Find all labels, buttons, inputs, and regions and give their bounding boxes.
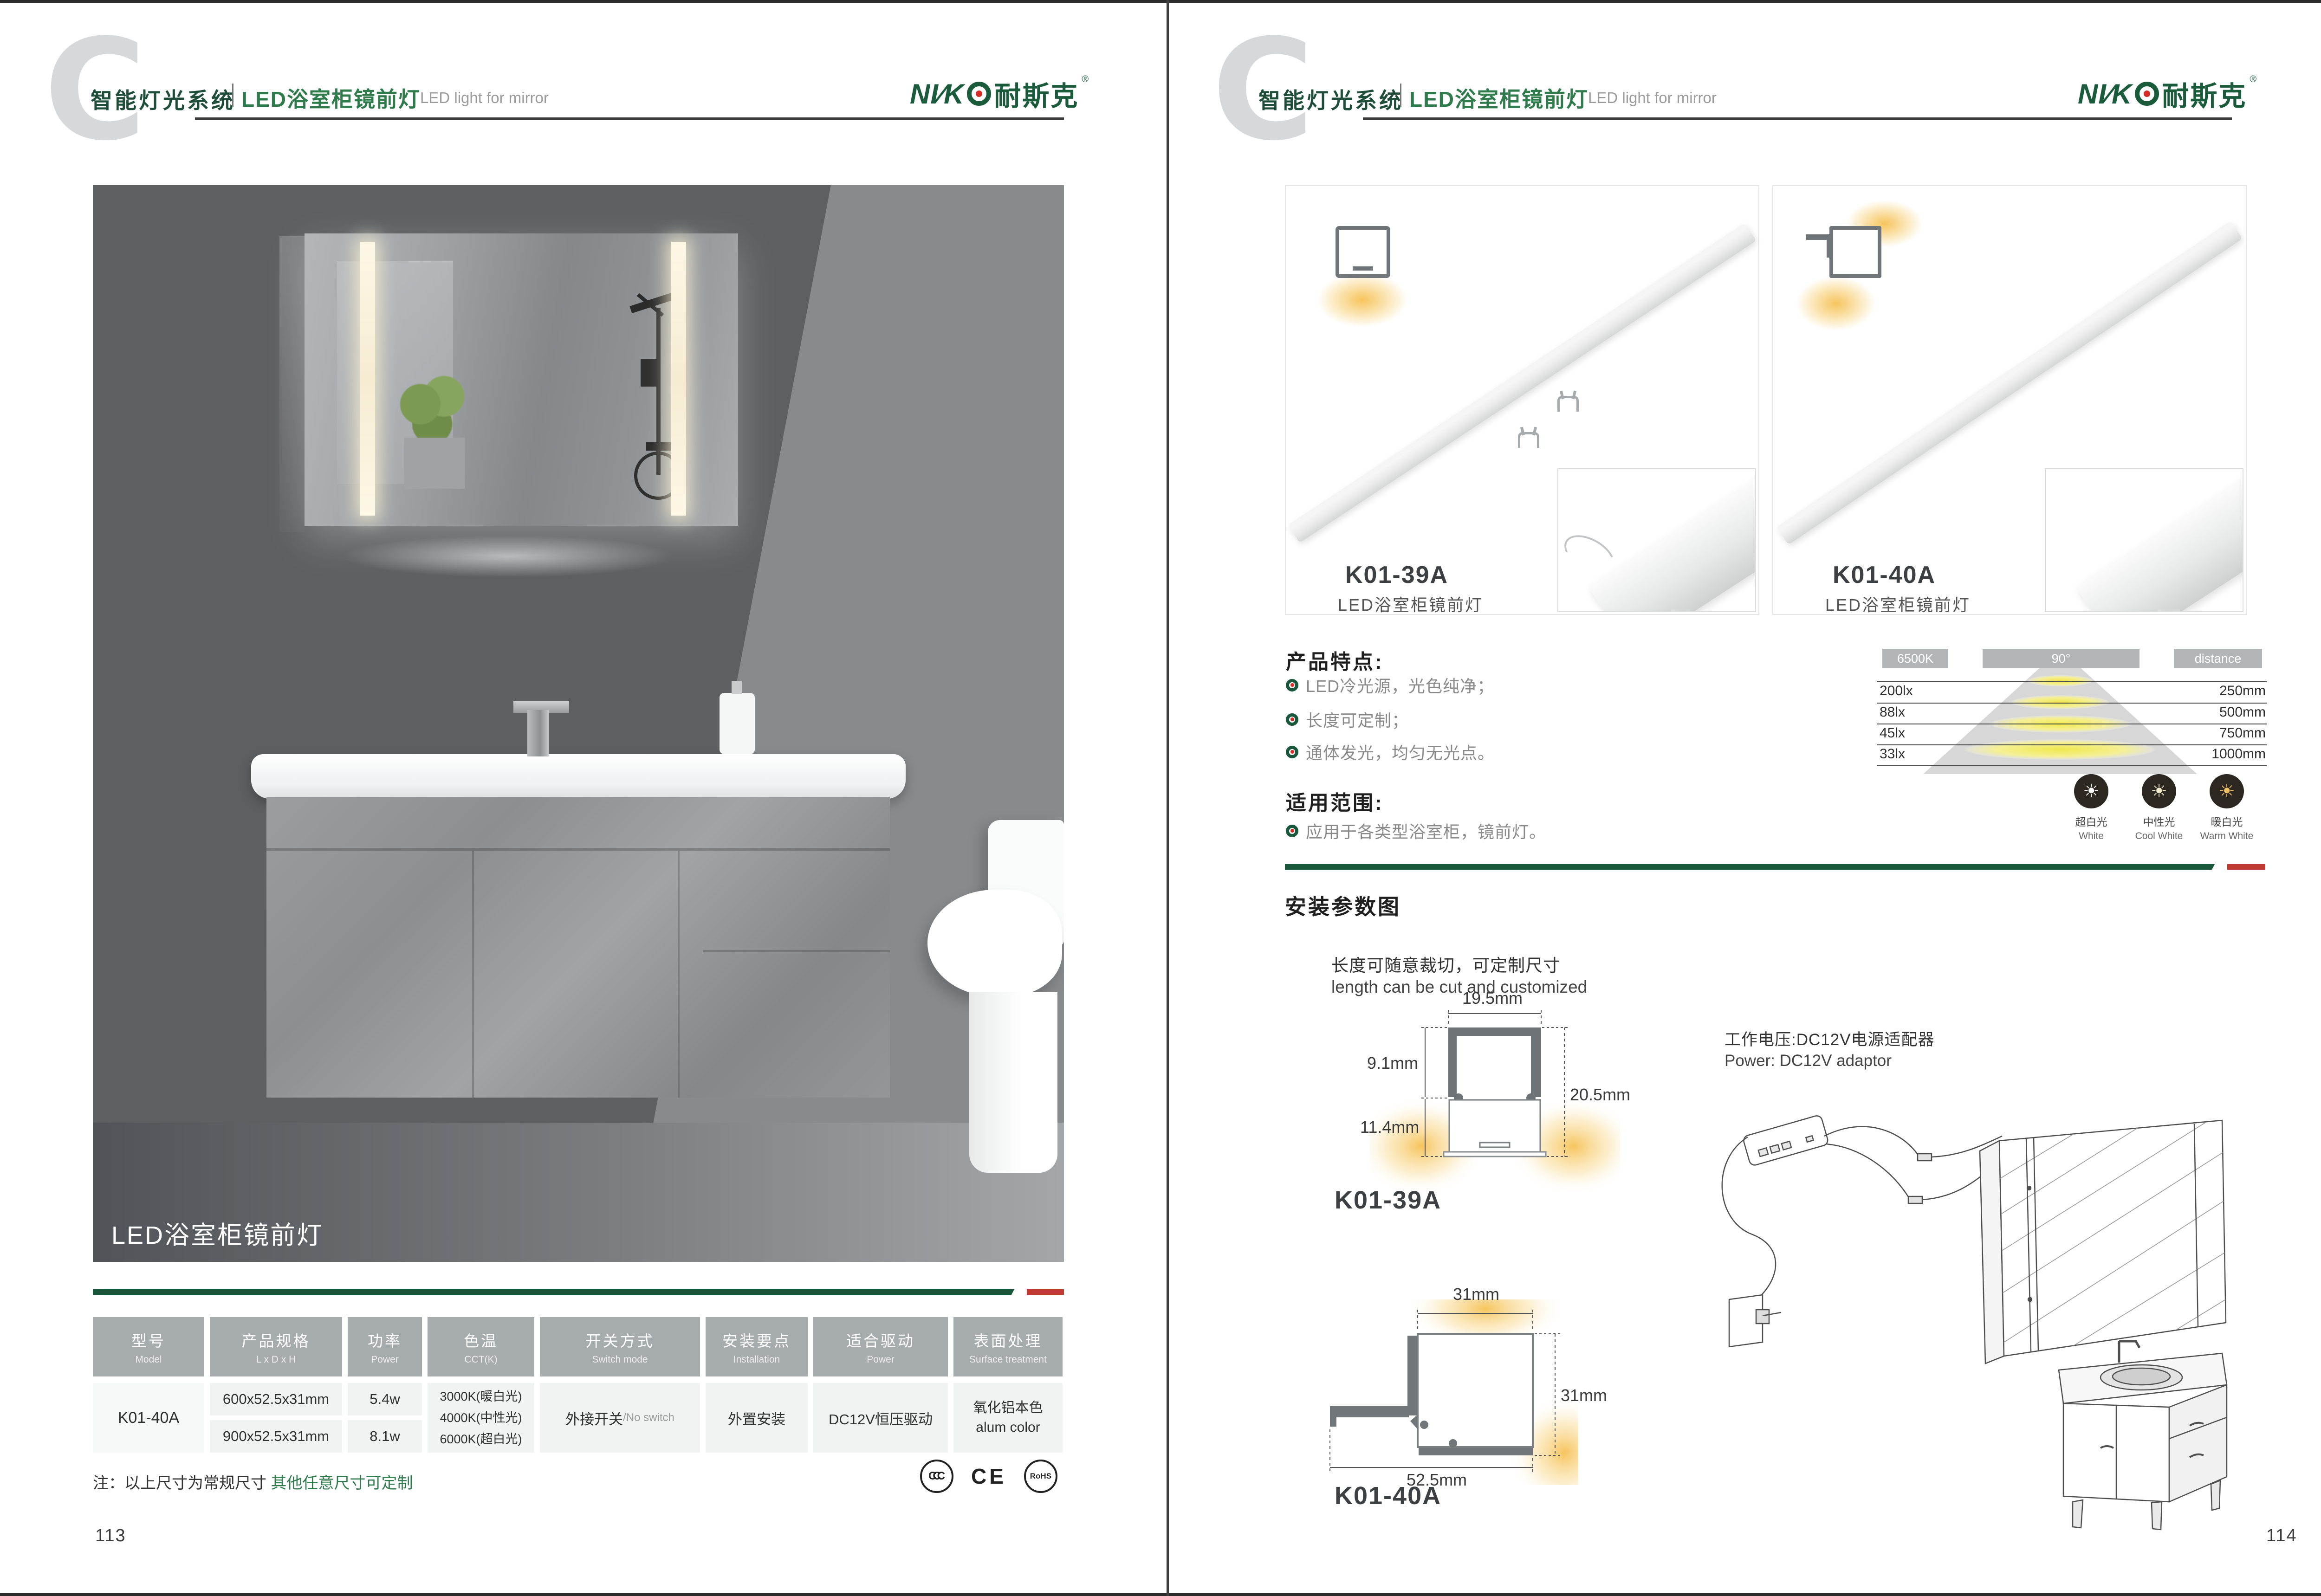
dim-left-lower: 11.4mm — [1360, 1118, 1419, 1137]
cell-driver: DC12V恒压驱动 — [813, 1383, 948, 1453]
mirror-cabinet — [279, 233, 738, 532]
ce-icon: CE — [971, 1464, 1006, 1489]
cell-cct: 3000K(暖白光) 4000K(中性光) 6000K(超白光) — [428, 1383, 534, 1453]
page-subtitle-cn: LED浴室柜镜前灯 — [241, 83, 421, 113]
dim-right: 20.5mm — [1570, 1085, 1630, 1105]
power-note-cn: 工作电压:DC12V电源适配器 — [1725, 1027, 1935, 1050]
faucet — [499, 701, 583, 757]
sheet-bottom-border — [0, 1593, 2321, 1596]
rohs-icon: RoHS — [1024, 1460, 1057, 1493]
cct-badge: 6500K — [1882, 649, 1948, 668]
bullet-icon — [1286, 825, 1298, 837]
led-strip-left — [360, 242, 375, 516]
cell-power-1: 5.4w — [348, 1383, 422, 1415]
bullet-icon — [1286, 746, 1298, 758]
temp-cool-white: ☀ 中性光 Cool White — [2125, 774, 2193, 842]
page-subtitle-en-right: LED light for mirror — [1588, 89, 1717, 107]
sun-icon-warm-white: ☀ — [2210, 774, 2244, 808]
profile-icon-k01-39a — [1330, 222, 1400, 292]
washbasin — [251, 754, 906, 799]
brand-logo: NI∕K 耐斯克 ® — [910, 74, 1089, 113]
col-header-surface: 表面处理Surface treatment — [953, 1317, 1063, 1376]
dim-top: 31mm — [1453, 1285, 1499, 1304]
scope-item: 应用于各类型浴室柜，镜前灯。 — [1286, 819, 1546, 843]
distance-value: 750mm — [2219, 725, 2266, 741]
install-section-title: 安装参数图 — [1285, 890, 1401, 921]
page-subtitle-cn-right: LED浴室柜镜前灯 — [1409, 83, 1588, 113]
diagram-model-k01-40a: K01-40A — [1335, 1481, 1441, 1510]
header-separator — [232, 84, 233, 107]
section-divider-right — [1285, 864, 2265, 870]
header-rule-right — [1363, 117, 2232, 120]
header-rule — [195, 117, 1064, 120]
cut-note-cn: 长度可随意裁切，可定制尺寸 — [1331, 951, 1561, 976]
dim-right: 31mm — [1561, 1386, 1607, 1405]
product-card-k01-40a: K01-40A LED浴室柜镜前灯 — [1772, 185, 2247, 615]
distance-badge: distance — [2174, 649, 2262, 668]
col-header-model: 型号Model — [93, 1317, 204, 1376]
page-number-right: 114 — [2266, 1526, 2297, 1546]
logo-cn: 耐斯克 — [994, 74, 1079, 113]
cell-size-1: 600x52.5x31mm — [210, 1383, 342, 1415]
distance-value: 250mm — [2219, 683, 2266, 699]
logo-o-icon — [967, 82, 991, 106]
profile-icon-k01-40a — [1817, 222, 1887, 292]
bullet-icon — [1286, 713, 1298, 726]
hero-caption: LED浴室柜镜前灯 — [111, 1215, 323, 1251]
photometry-chart: 6500K 90° distance 200lx 88lx 45lx 33lx … — [1877, 649, 2267, 774]
dim-left-upper: 9.1mm — [1367, 1053, 1418, 1073]
table-note: 注：以上尺寸为常规尺寸 其他任意尺寸可定制 — [93, 1470, 413, 1493]
led-strip-right — [671, 242, 686, 516]
catalog-spread: C 智能灯光系统 LED浴室柜镜前灯 LED light for mirror … — [0, 0, 2321, 1596]
lux-value: 88lx — [1880, 704, 1905, 720]
col-header-size: 产品规格L x D x H — [210, 1317, 342, 1376]
center-fold-line — [1167, 0, 1169, 1596]
mirror-face — [305, 233, 738, 526]
temp-white: ☀ 超白光 White — [2057, 774, 2125, 842]
shower-reflection — [602, 289, 713, 507]
logo-letters: NI∕K — [910, 78, 964, 110]
toilet — [927, 820, 1064, 1173]
feature-item: 通体发光，均匀无光点。 — [1286, 740, 1495, 764]
feature-item: 长度可定制； — [1286, 707, 1409, 731]
color-temp-legend: ☀ 超白光 White ☀ 中性光 Cool White ☀ 暖白光 Warm … — [2057, 774, 2261, 842]
light-pool-250mm — [2014, 673, 2107, 689]
corner-profile-icon — [1829, 226, 1881, 278]
installation-illustration — [1701, 1081, 2244, 1536]
temp-warm-white: ☀ 暖白光 Warm White — [2193, 774, 2261, 842]
logo-o-icon — [2135, 82, 2159, 106]
scope-title: 适用范围: — [1286, 786, 1384, 816]
page-title-right: 智能灯光系统 — [1258, 83, 1403, 115]
sun-icon-cool-white: ☀ — [2142, 774, 2176, 808]
distance-value: 1000mm — [2211, 746, 2266, 762]
cell-surface: 氧化铝本色 alum color — [953, 1383, 1063, 1453]
product-name: LED浴室柜镜前灯 — [1825, 592, 1971, 616]
product-model: K01-39A — [1345, 561, 1448, 589]
product-card-k01-39a: K01-39A LED浴室柜镜前灯 — [1285, 185, 1759, 615]
col-header-power: 功率Power — [348, 1317, 422, 1376]
cell-switch: 外接开关/No switch — [540, 1383, 700, 1453]
detail-inset-photo — [2045, 468, 2243, 612]
sun-icon-white: ☀ — [2074, 774, 2108, 808]
brand-logo-right: NI∕K 耐斯克 ® — [2078, 74, 2256, 113]
cell-model: K01-40A — [93, 1383, 204, 1453]
profile-diagram-k01-40a: 31mm 31mm 52.5mm — [1304, 1299, 1578, 1485]
lux-value: 45lx — [1880, 725, 1905, 741]
sheet-top-border — [0, 0, 2321, 3]
vanity-cabinet — [266, 797, 890, 1098]
plant-pot-reflection — [404, 438, 465, 489]
cabinet-under-glow — [288, 529, 729, 584]
feature-item: LED冷光源，光色纯净； — [1286, 673, 1494, 697]
light-pool-500mm — [1990, 692, 2130, 712]
mounting-clip-icon — [1518, 432, 1539, 448]
col-header-install: 安装要点Installation — [706, 1317, 808, 1376]
spec-table: 型号Model K01-40A 产品规格L x D x H 600x52.5x3… — [93, 1317, 1064, 1456]
dim-top: 19.5mm — [1462, 989, 1523, 1008]
product-model: K01-40A — [1833, 561, 1936, 589]
col-header-cct: 色温CCT(K) — [428, 1317, 534, 1376]
hero-photo: LED浴室柜镜前灯 — [93, 185, 1064, 1262]
cell-install: 外置安装 — [706, 1383, 808, 1453]
cell-power-2: 8.1w — [348, 1420, 422, 1453]
page-subtitle-en: LED light for mirror — [420, 89, 549, 107]
mirror-cabinet-side — [279, 236, 305, 532]
ccc-icon: CCC — [920, 1460, 953, 1493]
power-note-en: Power: DC12V adaptor — [1725, 1052, 1892, 1070]
profile-diagram-k01-39a: 19.5mm 9.1mm 11.4mm 20.5mm — [1369, 1007, 1620, 1193]
bullet-icon — [1286, 679, 1298, 691]
section-divider — [93, 1289, 1064, 1295]
features-title: 产品特点: — [1286, 645, 1384, 675]
page-number-left: 113 — [95, 1526, 126, 1546]
detail-inset-photo — [1557, 468, 1756, 612]
col-header-driver: 适合驱动Power — [813, 1317, 948, 1376]
header-separator-right — [1400, 84, 1401, 107]
light-pool-1000mm — [1926, 735, 2195, 764]
soap-bottle — [720, 693, 755, 754]
certifications: CCC CE RoHS — [920, 1460, 1057, 1493]
warm-glow — [1785, 269, 1887, 338]
square-profile-icon — [1336, 226, 1390, 278]
page-title: 智能灯光系统 — [91, 83, 235, 115]
logo-registered-mark: ® — [1082, 74, 1089, 85]
lux-value: 200lx — [1880, 683, 1913, 699]
mounting-clip-icon — [1557, 396, 1579, 412]
beam-angle-badge: 90° — [1983, 649, 2139, 668]
col-header-switch: 开关方式Switch mode — [540, 1317, 700, 1376]
product-name: LED浴室柜镜前灯 — [1338, 592, 1483, 616]
distance-value: 500mm — [2219, 704, 2266, 720]
cell-size-2: 900x52.5x31mm — [210, 1420, 342, 1453]
diagram-model-k01-39a: K01-39A — [1335, 1186, 1441, 1215]
lux-value: 33lx — [1880, 746, 1905, 762]
cut-note-en: length can be cut and customized — [1331, 977, 1587, 997]
